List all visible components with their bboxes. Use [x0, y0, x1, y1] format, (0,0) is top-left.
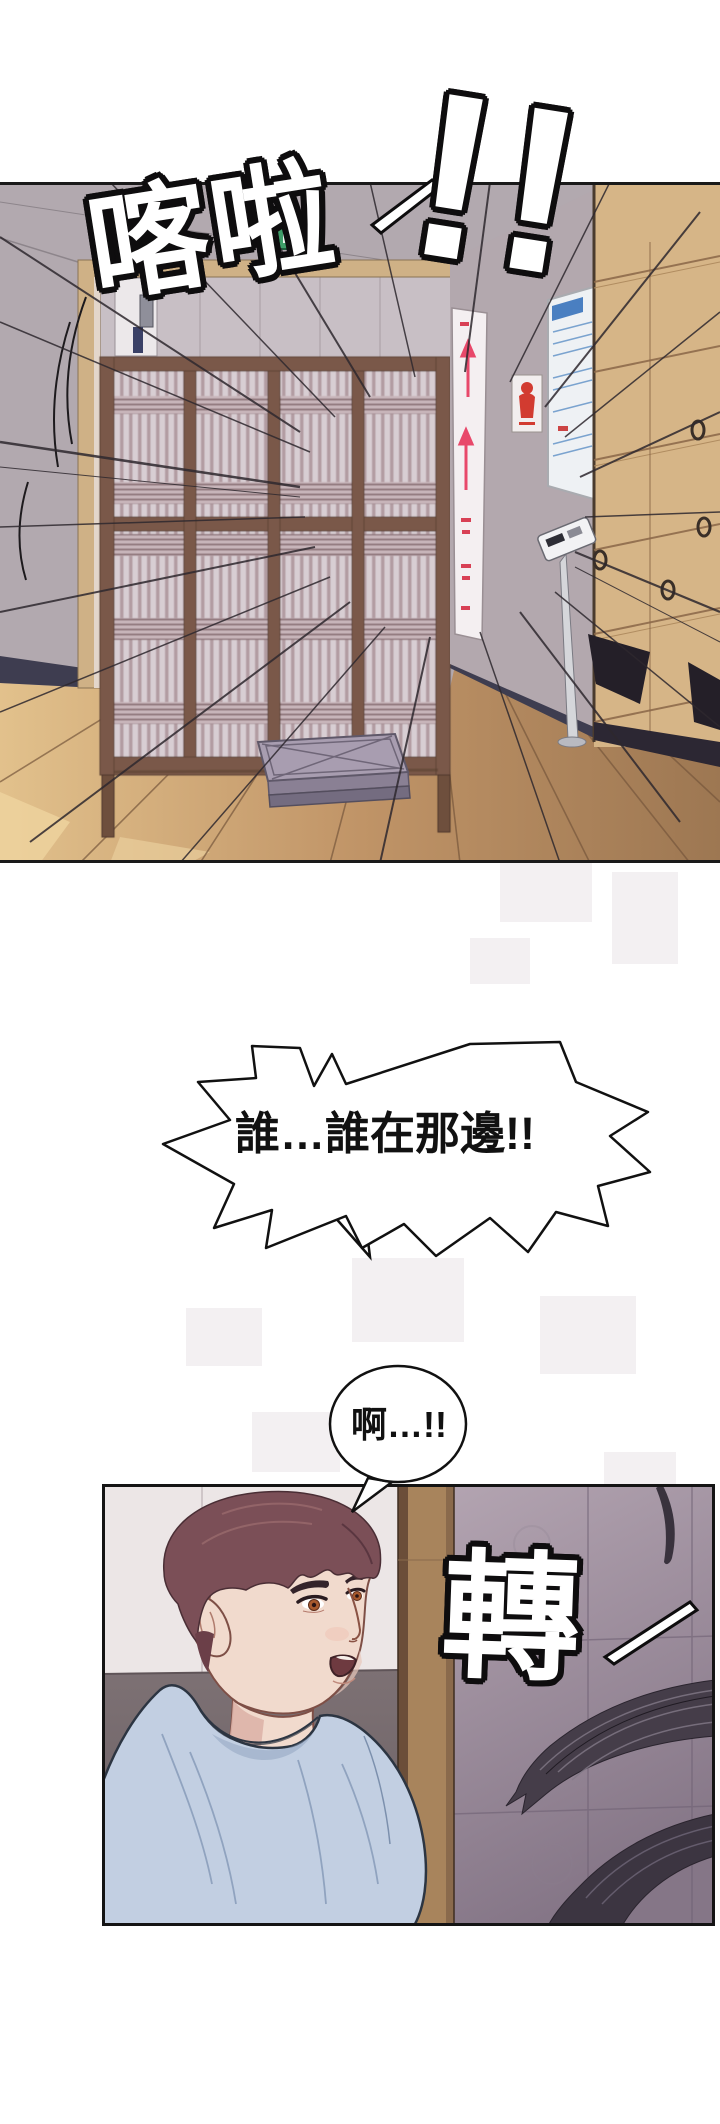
sfx-turn: 轉 — [440, 1548, 583, 1691]
vertical-banner — [452, 308, 487, 640]
watermark-block — [500, 856, 592, 922]
sfx-exclamation: !! — [397, 54, 604, 313]
watermark-block — [612, 872, 678, 964]
manhwa-page: 喀啦 !! 誰…誰在那邊!! 啊…!! 轉 — [0, 0, 720, 2124]
watermark-block — [186, 1308, 262, 1366]
shout-text: 誰…誰在那邊!! — [235, 1108, 535, 1159]
floor-mat — [258, 734, 410, 807]
watermark-block — [540, 1296, 636, 1374]
motion-slash-icon — [595, 1590, 705, 1668]
speech-bubble-gasp: 啊…!! — [320, 1355, 480, 1530]
gasp-text: 啊…!! — [351, 1404, 447, 1445]
red-poster — [512, 375, 542, 432]
watermark-block — [470, 938, 530, 984]
bubble-tail — [352, 1478, 392, 1512]
panel-man-turning — [102, 1484, 715, 1926]
door-handle — [133, 327, 143, 353]
speech-bubble-shout: 誰…誰在那邊!! — [140, 1030, 670, 1305]
man-scene — [102, 1484, 715, 1926]
